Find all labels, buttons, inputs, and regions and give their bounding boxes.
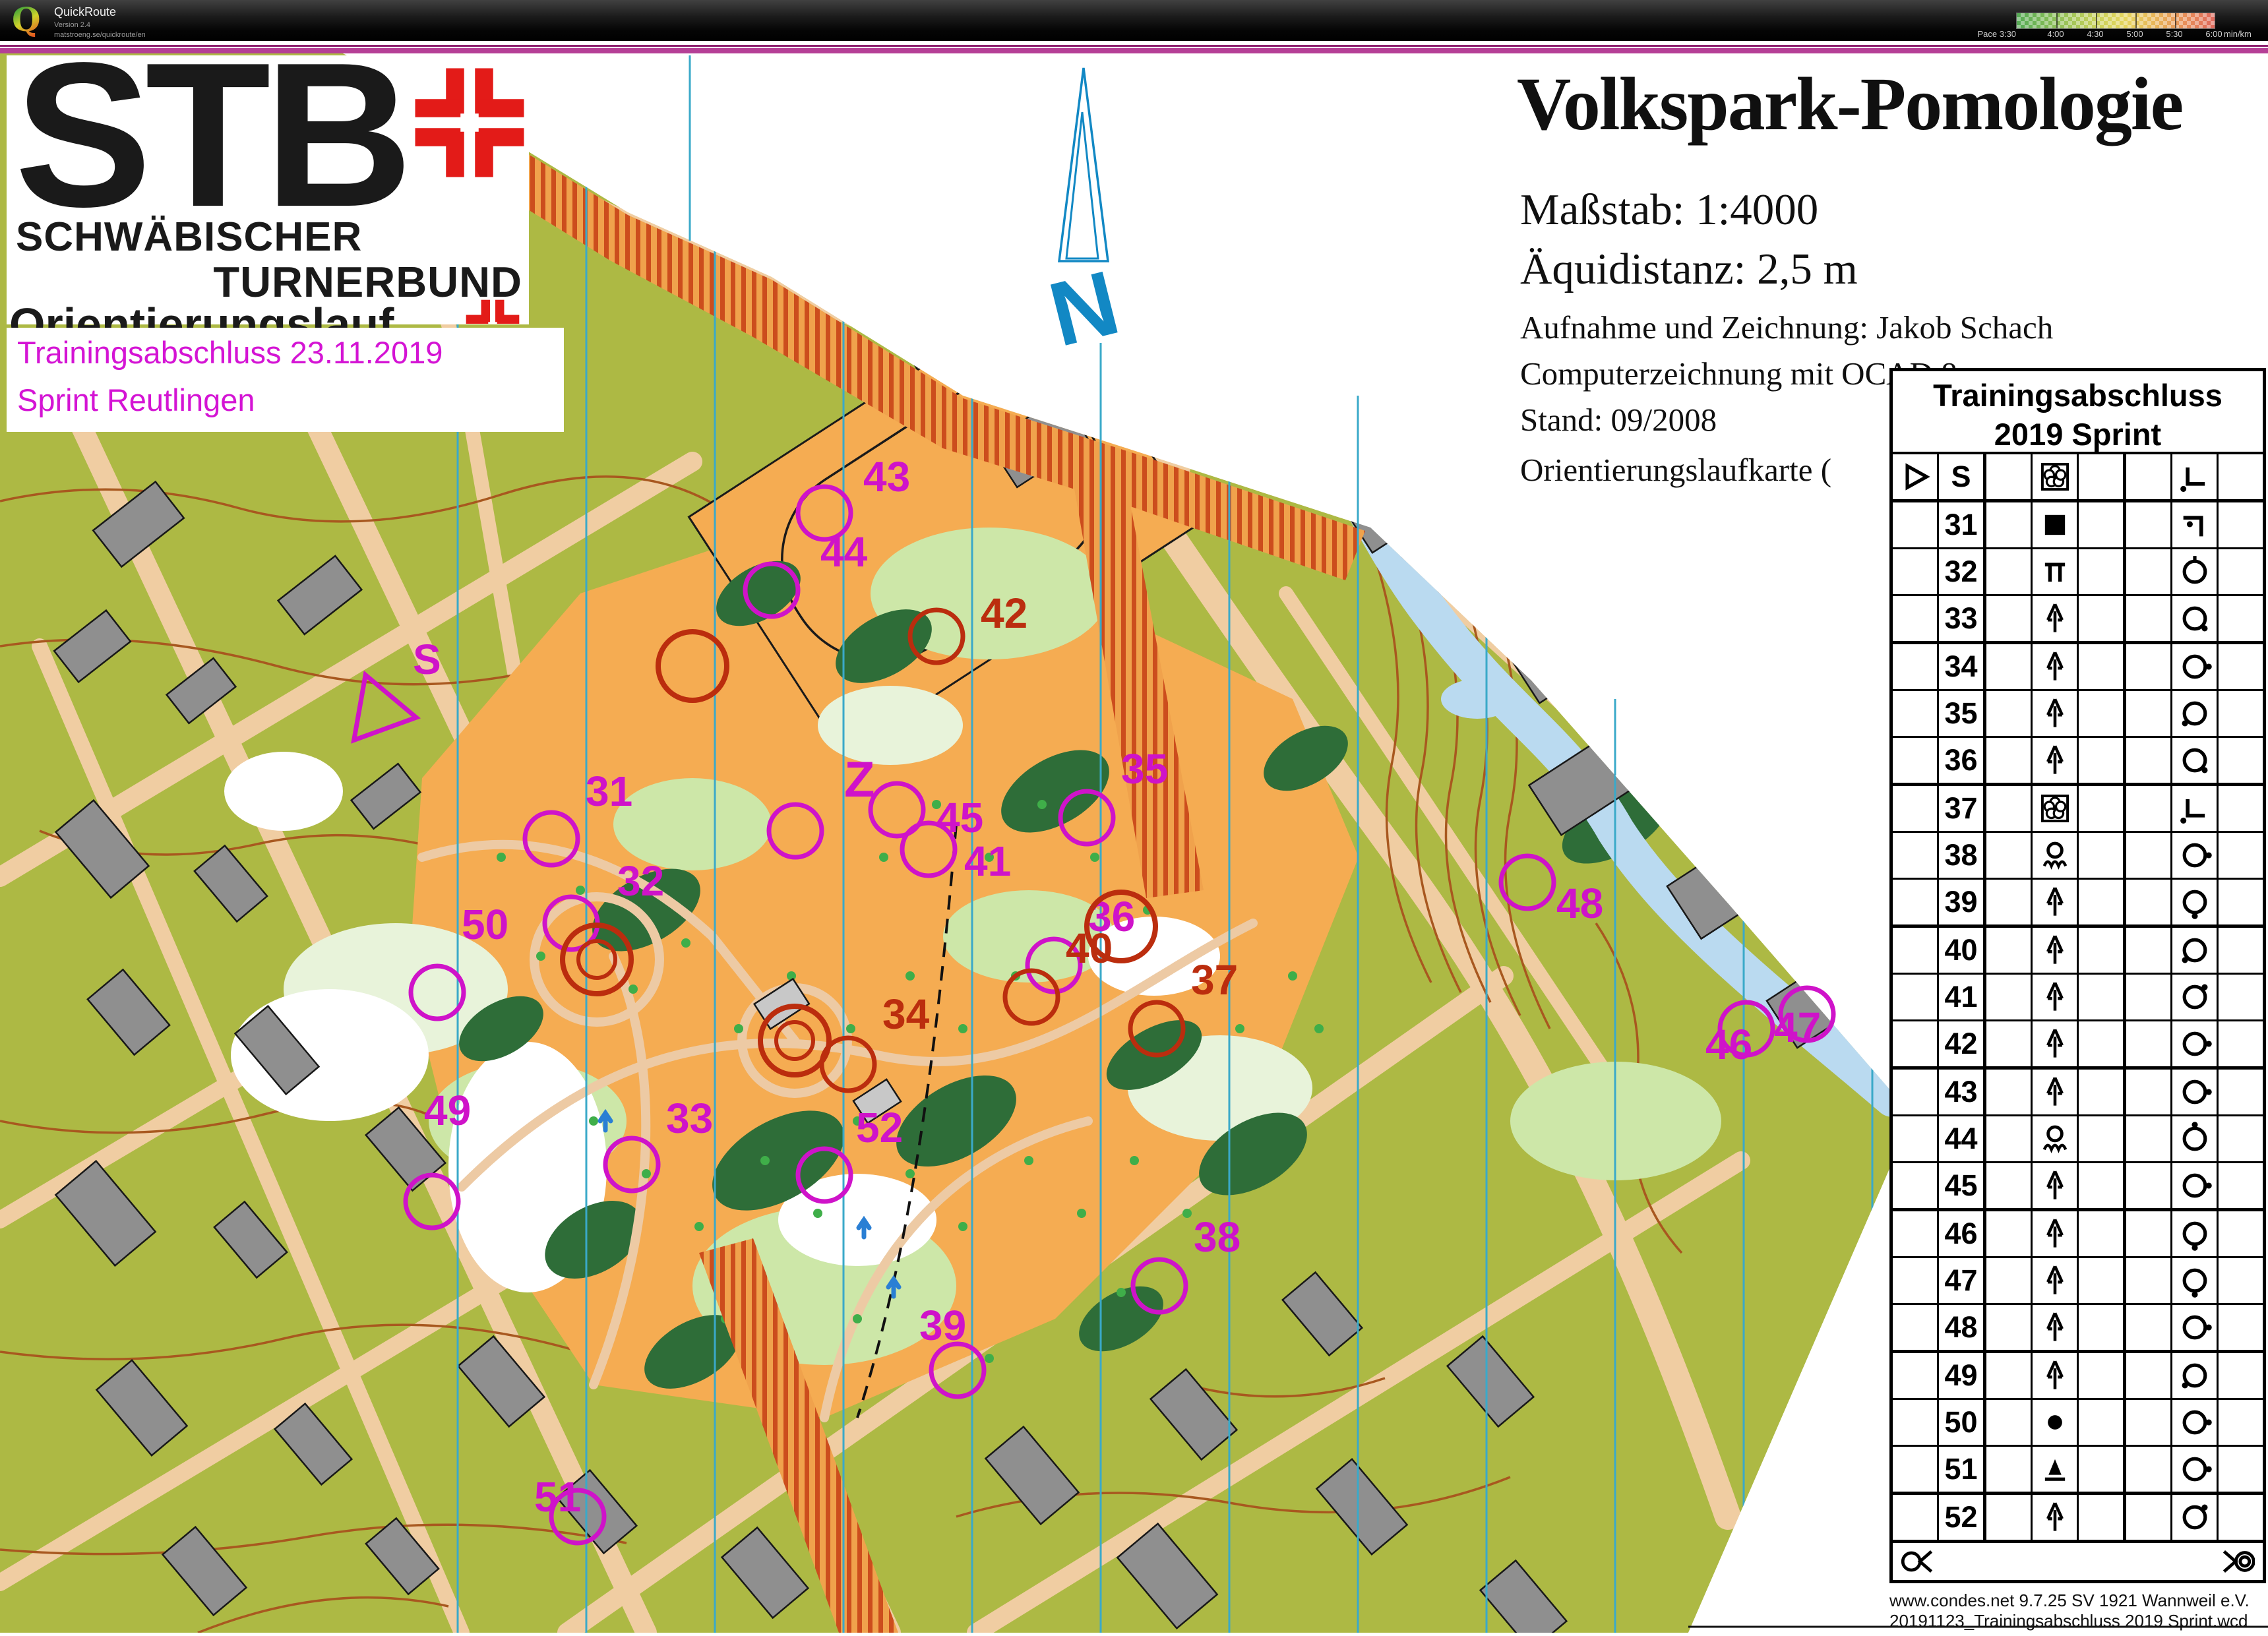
- control-code: 45: [1944, 1168, 1977, 1203]
- sheet-cell: 46: [1937, 1211, 1983, 1256]
- sheet-cell: [2123, 928, 2170, 973]
- control-code: 49: [1944, 1358, 1977, 1393]
- sheet-cell: [1983, 1258, 2031, 1303]
- sheet-cell: [1983, 786, 2031, 831]
- sheet-row-47: 47: [1893, 1256, 2263, 1303]
- sheet-cell: [2077, 1021, 2123, 1066]
- control-code: 42: [1944, 1027, 1977, 1061]
- svg-text:39: 39: [919, 1302, 966, 1349]
- sheet-cell: [2123, 880, 2170, 924]
- svg-text:41: 41: [964, 837, 1011, 885]
- sheet-cell: 33: [1937, 596, 1983, 641]
- sheet-cell: 43: [1937, 1070, 1983, 1114]
- control-code: 38: [1944, 838, 1977, 872]
- svg-text:38: 38: [1194, 1213, 1241, 1261]
- svg-text:49: 49: [424, 1087, 471, 1134]
- sheet-cell: 36: [1937, 738, 1983, 783]
- sheet-cell: 39: [1937, 880, 1983, 924]
- sheet-cell: [1983, 596, 2031, 641]
- sheet-cell: 31: [1937, 502, 1983, 547]
- sheet-cell: [2217, 549, 2263, 594]
- position-NE-icon: [2170, 1495, 2217, 1540]
- sheet-cell: [2123, 1070, 2170, 1114]
- sheet-cell: [2123, 975, 2170, 1019]
- control-code: 52: [1944, 1500, 1977, 1534]
- pace-label: 6:00: [2205, 29, 2222, 39]
- sheet-row-S: S: [1893, 454, 2263, 499]
- sheet-cell: [1893, 928, 1937, 973]
- feature-flower-icon: [2031, 454, 2077, 499]
- sheet-cell: [1893, 1305, 1937, 1350]
- sheet-cell: [2217, 644, 2263, 689]
- position-S-icon: [2170, 880, 2217, 924]
- course-header-line1: Trainingsabschluss: [1893, 377, 2263, 415]
- sheet-cell: [2077, 928, 2123, 973]
- position-SW-icon: [2170, 1353, 2217, 1398]
- north-arrow-label: N: [1040, 252, 1128, 367]
- control-code: 41: [1944, 980, 1977, 1014]
- map-status: Stand: 09/2008: [1520, 401, 1717, 439]
- sheet-row-37: 37: [1893, 783, 2263, 831]
- svg-text:32: 32: [617, 857, 664, 905]
- pace-unit: min/km: [2224, 29, 2252, 39]
- sheet-cell: [2077, 975, 2123, 1019]
- sheet-cell: [2077, 738, 2123, 783]
- sheet-row-42: 42: [1893, 1019, 2263, 1066]
- sheet-cell: [2077, 1400, 2123, 1445]
- app-version: Version 2.4: [54, 21, 90, 29]
- sheet-row-41: 41: [1893, 973, 2263, 1019]
- sheet-row-38: 38: [1893, 831, 2263, 878]
- sheet-cell: [1893, 975, 1937, 1019]
- feature-tree-icon: [2031, 1495, 2077, 1540]
- control-code: 34: [1944, 650, 1977, 684]
- control-code: 47: [1944, 1263, 1977, 1298]
- sheet-cell: [2217, 502, 2263, 547]
- control-code: 36: [1944, 743, 1977, 777]
- sheet-cell: 37: [1937, 786, 1983, 831]
- sheet-cell: [2123, 502, 2170, 547]
- feature-tree-icon: [2031, 1258, 2077, 1303]
- svg-text:35: 35: [1121, 745, 1168, 793]
- sheet-cell: [2077, 1305, 2123, 1350]
- sheet-row-44: 44: [1893, 1114, 2263, 1161]
- sheet-cell: [2217, 738, 2263, 783]
- sheet-cell: [2123, 1163, 2170, 1208]
- club-logo-box: STB SCHWÄBISCHER TURNERBUND Orientierung…: [7, 55, 529, 324]
- sheet-cell: [2217, 928, 2263, 973]
- sheet-cell: [1893, 691, 1937, 736]
- svg-text:44: 44: [820, 528, 868, 576]
- map-title: Volkspark-Pomologie: [1517, 61, 2182, 148]
- position-E-icon: [2170, 833, 2217, 878]
- separator-line-magenta: [0, 48, 2268, 53]
- finish-funnel-right-icon: [2221, 1544, 2255, 1579]
- pace-color-scale: [2016, 13, 2215, 29]
- pace-tick-mark: [2096, 13, 2097, 28]
- sheet-cell: [2123, 1305, 2170, 1350]
- sheet-cell: [2077, 1258, 2123, 1303]
- feature-tree-icon: [2031, 1070, 2077, 1114]
- sheet-cell: 32: [1937, 549, 1983, 594]
- sheet-cell: [1893, 596, 1937, 641]
- sheet-cell: [2217, 786, 2263, 831]
- sheet-cell: [2077, 1116, 2123, 1161]
- sheet-row-45: 45: [1893, 1161, 2263, 1208]
- feature-tree-icon: [2031, 975, 2077, 1019]
- control-code: 31: [1944, 508, 1977, 542]
- position-E-icon: [2170, 1021, 2217, 1066]
- pace-tick-mark: [2056, 13, 2058, 28]
- sheet-cell: [1893, 1021, 1937, 1066]
- sheet-cell: [1893, 1495, 1937, 1540]
- map-title-block: Volkspark-Pomologie Maßstab: 1:4000 Äqui…: [1517, 61, 2182, 148]
- sheet-cell: [1983, 644, 2031, 689]
- position-SW-icon: [2170, 928, 2217, 973]
- feature-statue-icon: [2031, 833, 2077, 878]
- feature-tree-icon: [2031, 880, 2077, 924]
- svg-text:34: 34: [882, 990, 930, 1038]
- control-code: 51: [1944, 1452, 1977, 1486]
- control-description-sheet: Trainingsabschluss 2019 Sprint S31323334…: [1889, 368, 2266, 1583]
- sheet-cell: 38: [1937, 833, 1983, 878]
- feature-tree-icon: [2031, 596, 2077, 641]
- sheet-cell: [2123, 1447, 2170, 1492]
- position-corner-sw-icon: [2170, 454, 2217, 499]
- sheet-row-50: 50: [1893, 1398, 2263, 1445]
- map-note: Orientierungslaufkarte (: [1520, 451, 1831, 489]
- sheet-cell: [2123, 644, 2170, 689]
- svg-text:33: 33: [666, 1095, 713, 1142]
- sheet-row-43: 43: [1893, 1066, 2263, 1114]
- sheet-cell: [2077, 502, 2123, 547]
- sheet-cell: [1983, 454, 2031, 499]
- sheet-cell: 44: [1937, 1116, 1983, 1161]
- position-E-icon: [2170, 1400, 2217, 1445]
- svg-text:37: 37: [1191, 956, 1238, 1004]
- sheet-cell: [2217, 596, 2263, 641]
- feature-statue-icon: [2031, 1116, 2077, 1161]
- sheet-cell: S: [1937, 454, 1983, 499]
- sheet-cell: [1893, 1211, 1937, 1256]
- map-equidistance: Äquidistanz: 2,5 m: [1520, 244, 1858, 295]
- pace-label: 5:30: [2166, 29, 2182, 39]
- sheet-cell: [2217, 1400, 2263, 1445]
- pace-label: 4:00: [2047, 29, 2064, 39]
- sheet-row-51: 51: [1893, 1445, 2263, 1492]
- sheet-cell: [2077, 1163, 2123, 1208]
- pace-label: 5:00: [2126, 29, 2143, 39]
- feature-tree-icon: [2031, 1163, 2077, 1208]
- svg-text:43: 43: [863, 453, 910, 500]
- sheet-row-34: 34: [1893, 641, 2263, 689]
- feature-tree-icon: [2031, 1021, 2077, 1066]
- sheet-cell: 52: [1937, 1495, 1983, 1540]
- control-code: 40: [1944, 933, 1977, 967]
- sheet-cell: 50: [1937, 1400, 1983, 1445]
- condes-credits: www.condes.net 9.7.25 SV 1921 Wannweil e…: [1889, 1591, 2250, 1631]
- control-code: 43: [1944, 1075, 1977, 1109]
- control-code: 33: [1944, 601, 1977, 636]
- sheet-row-33: 33: [1893, 594, 2263, 641]
- course-header: Trainingsabschluss 2019 Sprint: [1893, 371, 2263, 454]
- sheet-cell: [1893, 880, 1937, 924]
- sheet-cell: [2123, 1258, 2170, 1303]
- svg-text:46: 46: [1705, 1021, 1752, 1068]
- sheet-cell: [1983, 880, 2031, 924]
- sheet-cell: [2217, 1163, 2263, 1208]
- sheet-cell: [1893, 738, 1937, 783]
- svg-text:48: 48: [1556, 880, 1603, 927]
- sheet-cell: [1893, 1163, 1937, 1208]
- position-corner-sw-icon: [2170, 786, 2217, 831]
- sheet-cell: [1983, 691, 2031, 736]
- sheet-cell: [2217, 1211, 2263, 1256]
- sheet-cell: [2077, 1070, 2123, 1114]
- feature-monument-icon: [2031, 1447, 2077, 1492]
- sheet-cell: [2123, 1353, 2170, 1398]
- sheet-cell: [1983, 1353, 2031, 1398]
- sheet-cell: [1893, 1116, 1937, 1161]
- svg-text:Z: Z: [844, 752, 874, 808]
- sheet-cell: 45: [1937, 1163, 1983, 1208]
- feature-dot-icon: [2031, 1400, 2077, 1445]
- finish-symbols-row: [1893, 1540, 2263, 1580]
- sheet-cell: [2123, 1116, 2170, 1161]
- sheet-cell: [2077, 880, 2123, 924]
- position-E-icon: [2170, 1070, 2217, 1114]
- pace-label: Pace 3:30: [1977, 29, 2016, 39]
- sheet-cell: [2217, 691, 2263, 736]
- svg-text:45: 45: [936, 794, 983, 841]
- sheet-cell: [2217, 1116, 2263, 1161]
- finish-funnel-left-icon: [1901, 1544, 1935, 1579]
- sheet-cell: [2217, 1495, 2263, 1540]
- control-code: S: [1951, 460, 1971, 494]
- control-code: 39: [1944, 885, 1977, 919]
- sheet-cell: [2123, 549, 2170, 594]
- pace-label: 4:30: [2087, 29, 2103, 39]
- sheet-cell: [2123, 454, 2170, 499]
- sheet-cell: [2077, 786, 2123, 831]
- control-code: 44: [1944, 1122, 1977, 1156]
- sheet-cell: 47: [1937, 1258, 1983, 1303]
- sheet-cell: 35: [1937, 691, 1983, 736]
- position-NE-icon: [2170, 975, 2217, 1019]
- svg-text:52: 52: [856, 1104, 903, 1151]
- event-info-box: Trainingsabschluss 23.11.2019 Sprint Reu…: [7, 328, 564, 432]
- control-code: 50: [1944, 1405, 1977, 1439]
- sheet-cell: [2123, 1495, 2170, 1540]
- sheet-cell: [2077, 644, 2123, 689]
- sheet-cell: [1983, 833, 2031, 878]
- control-code: 48: [1944, 1310, 1977, 1345]
- sheet-cell: [2217, 880, 2263, 924]
- control-code: 35: [1944, 696, 1977, 731]
- sheet-cell: 42: [1937, 1021, 1983, 1066]
- position-SE-icon: [2170, 596, 2217, 641]
- sheet-row-39: 39: [1893, 878, 2263, 924]
- sheet-cell: [2077, 454, 2123, 499]
- sheet-cell: [1983, 502, 2031, 547]
- position-SE-icon: [2170, 738, 2217, 783]
- sheet-cell: [2123, 738, 2170, 783]
- position-SW-icon: [2170, 691, 2217, 736]
- position-corner-ne-icon: [2170, 502, 2217, 547]
- sheet-row-35: 35: [1893, 689, 2263, 736]
- sheet-cell: [2217, 833, 2263, 878]
- svg-text:S: S: [413, 636, 441, 683]
- feature-tree-icon: [2031, 928, 2077, 973]
- svg-text:50: 50: [462, 901, 508, 948]
- sheet-row-46: 46: [1893, 1208, 2263, 1256]
- map-survey-credit: Aufnahme und Zeichnung: Jakob Schach: [1520, 309, 2053, 346]
- condes-credit-line2: 20191123_Trainingsabschluss 2019 Sprint.…: [1889, 1611, 2250, 1631]
- position-E-icon: [2170, 1305, 2217, 1350]
- condes-credit-line1: www.condes.net 9.7.25 SV 1921 Wannweil e…: [1889, 1591, 2250, 1611]
- sheet-cell: [1893, 549, 1937, 594]
- pace-scale-labels: Pace 3:304:004:305:005:306:00min/km: [0, 29, 2268, 40]
- stb-emblem-icon: [412, 65, 528, 181]
- sheet-cell: [1983, 975, 2031, 1019]
- feature-square-icon: [2031, 502, 2077, 547]
- sheet-cell: [2077, 833, 2123, 878]
- sheet-cell: [1983, 1447, 2031, 1492]
- pace-tick-mark: [2175, 13, 2176, 28]
- sheet-cell: [2123, 596, 2170, 641]
- sheet-cell: [2217, 1447, 2263, 1492]
- feature-tree-icon: [2031, 1305, 2077, 1350]
- position-tick-n-icon: [2170, 549, 2217, 594]
- control-code: 46: [1944, 1217, 1977, 1251]
- sheet-cell: [1983, 1211, 2031, 1256]
- svg-text:47: 47: [1774, 1004, 1821, 1051]
- sheet-cell: [2123, 1021, 2170, 1066]
- feature-flower-icon: [2031, 786, 2077, 831]
- position-S-icon: [2170, 1258, 2217, 1303]
- sheet-cell: [1983, 928, 2031, 973]
- course-header-line2: 2019 Sprint: [1893, 415, 2263, 454]
- sheet-cell: [1893, 644, 1937, 689]
- sheet-row-36: 36: [1893, 736, 2263, 783]
- sheet-cell: [1983, 1400, 2031, 1445]
- sheet-cell: [2077, 1495, 2123, 1540]
- sheet-cell: [1983, 1305, 2031, 1350]
- start-symbol-icon: [1893, 454, 1937, 499]
- event-name-date: Trainingsabschluss 23.11.2019: [17, 334, 443, 371]
- sheet-cell: [1983, 1070, 2031, 1114]
- sheet-cell: [2217, 1258, 2263, 1303]
- sheet-cell: [1893, 786, 1937, 831]
- sheet-row-40: 40: [1893, 924, 2263, 973]
- sheet-cell: [2217, 454, 2263, 499]
- sheet-cell: [1893, 1070, 1937, 1114]
- sheet-cell: [2123, 833, 2170, 878]
- sheet-cell: 34: [1937, 644, 1983, 689]
- sheet-row-48: 48: [1893, 1303, 2263, 1350]
- sheet-cell: [2123, 691, 2170, 736]
- sheet-cell: [2077, 1353, 2123, 1398]
- sheet-cell: [1893, 833, 1937, 878]
- svg-text:51: 51: [534, 1473, 581, 1521]
- sheet-cell: [1983, 1163, 2031, 1208]
- sheet-cell: [2077, 1211, 2123, 1256]
- control-code: 32: [1944, 555, 1977, 589]
- position-S-icon: [2170, 1211, 2217, 1256]
- sheet-cell: [2123, 1400, 2170, 1445]
- separator-line-dark: [0, 45, 2268, 47]
- sheet-cell: [2217, 1353, 2263, 1398]
- feature-tree-icon: [2031, 1211, 2077, 1256]
- svg-text:31: 31: [586, 768, 632, 815]
- sheet-row-31: 31: [1893, 499, 2263, 547]
- quickroute-window: { "titlebar": { "app_name": "QuickRoute"…: [0, 0, 2268, 1633]
- sheet-cell: [1983, 1021, 2031, 1066]
- position-N-icon: [2170, 1116, 2217, 1161]
- sheet-cell: [1893, 1258, 1937, 1303]
- map-scale: Maßstab: 1:4000: [1520, 185, 1818, 235]
- north-arrow: N: [1040, 68, 1128, 366]
- sheet-row-32: 32: [1893, 547, 2263, 594]
- sheet-cell: [2217, 1305, 2263, 1350]
- sheet-cell: [1893, 1400, 1937, 1445]
- sheet-cell: 49: [1937, 1353, 1983, 1398]
- sheet-cell: [2217, 1021, 2263, 1066]
- sheet-cell: [2123, 786, 2170, 831]
- position-E-icon: [2170, 1447, 2217, 1492]
- feature-tree-icon: [2031, 644, 2077, 689]
- sheet-cell: 48: [1937, 1305, 1983, 1350]
- position-E-icon: [2170, 644, 2217, 689]
- sheet-cell: [2077, 549, 2123, 594]
- sheet-cell: [2123, 1211, 2170, 1256]
- feature-canopy-icon: [2031, 549, 2077, 594]
- sheet-cell: [1983, 549, 2031, 594]
- sheet-cell: [1893, 1353, 1937, 1398]
- sheet-cell: [2077, 596, 2123, 641]
- sheet-cell: 51: [1937, 1447, 1983, 1492]
- sheet-cell: 41: [1937, 975, 1983, 1019]
- feature-tree-icon: [2031, 691, 2077, 736]
- sheet-cell: [1983, 738, 2031, 783]
- pace-tick-mark: [2135, 13, 2137, 28]
- titlebar: Q QuickRoute Version 2.4 matstroeng.se/q…: [0, 0, 2268, 41]
- sheet-cell: [1983, 1495, 2031, 1540]
- app-title: QuickRoute: [54, 5, 116, 19]
- sheet-cell: [2217, 1070, 2263, 1114]
- control-code: 37: [1944, 791, 1977, 826]
- sheet-cell: [1893, 1447, 1937, 1492]
- sheet-row-52: 52: [1893, 1492, 2263, 1540]
- sheet-cell: [2077, 1447, 2123, 1492]
- org-name-line1: SCHWÄBISCHER: [16, 214, 362, 260]
- svg-text:42: 42: [981, 590, 1027, 637]
- sheet-row-49: 49: [1893, 1350, 2263, 1398]
- feature-tree-icon: [2031, 738, 2077, 783]
- sheet-cell: 40: [1937, 928, 1983, 973]
- position-E-icon: [2170, 1163, 2217, 1208]
- sheet-cell: [2217, 975, 2263, 1019]
- feature-tree-icon: [2031, 1353, 2077, 1398]
- event-location: Sprint Reutlingen: [17, 382, 255, 418]
- sheet-cell: [1893, 502, 1937, 547]
- sheet-cell: [1983, 1116, 2031, 1161]
- sheet-cell: [2077, 691, 2123, 736]
